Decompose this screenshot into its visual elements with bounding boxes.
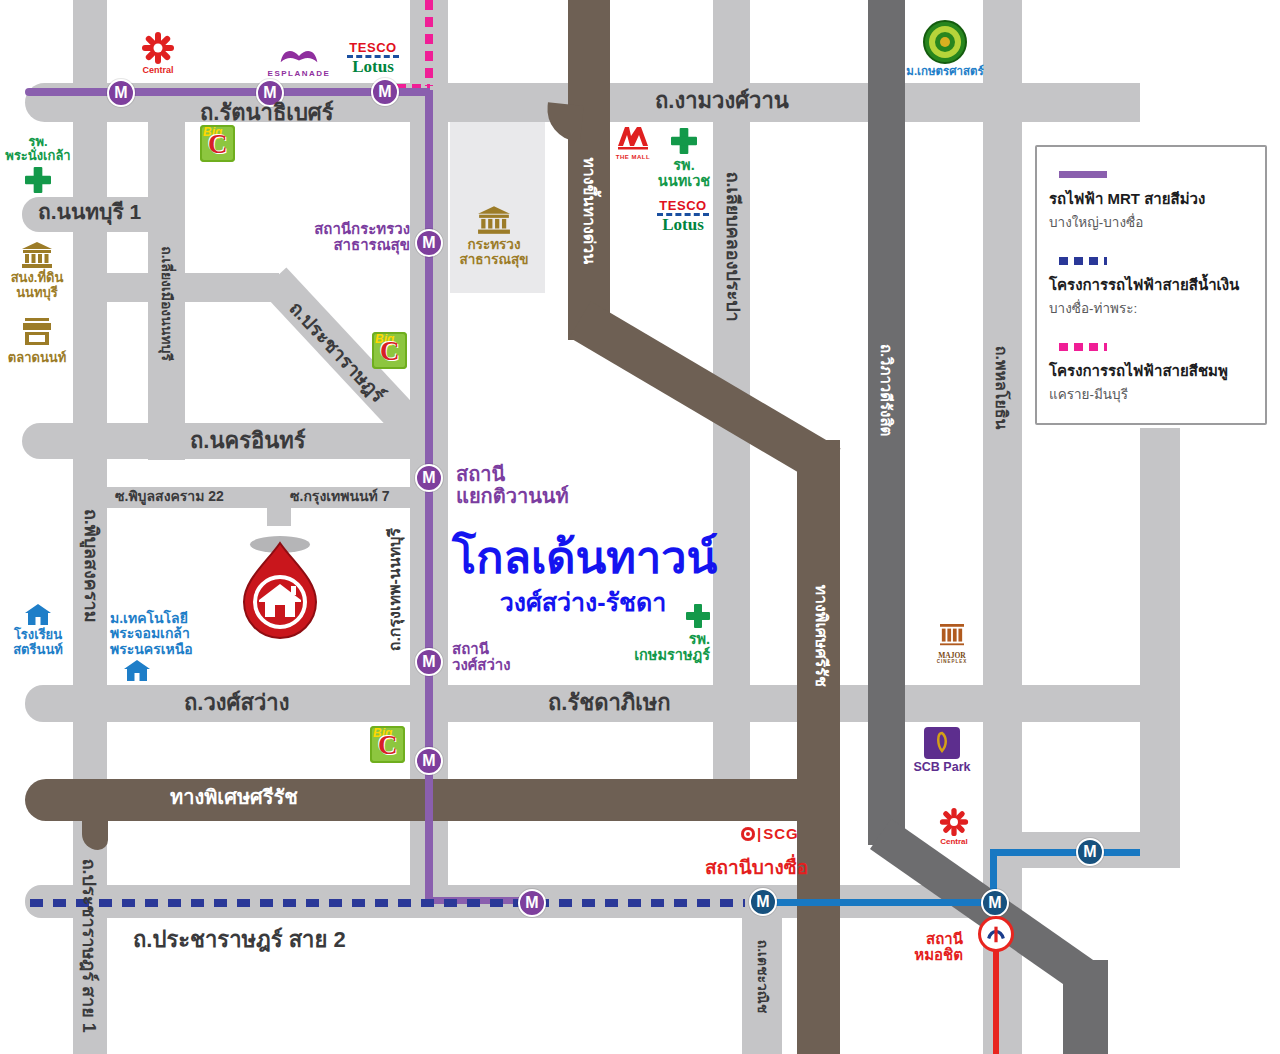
road-label-soi-phibun22: ซ.พิบูลสงคราม 22 bbox=[115, 489, 224, 504]
hospital-label-line: รพ. bbox=[650, 158, 718, 174]
station-label-line: สถานี bbox=[452, 641, 511, 657]
station-label-krasuang: สถานีกระทรวง สาธารณสุข bbox=[280, 221, 410, 253]
legend-swatch-pink-line bbox=[1059, 343, 1107, 351]
landmark-moph: กระทรวง สาธารณสุข bbox=[448, 206, 540, 268]
mrt-station-icon-tiwanon: M bbox=[415, 464, 443, 492]
map-canvas: M M M M M M M M M M M ถ.รัตนาธิเบศร์ ถ.ง… bbox=[0, 0, 1280, 1054]
road-label-expressway-ramp: ทางขึ้นทางด่วน bbox=[580, 126, 597, 296]
hospital-label-line: นนทเวช bbox=[650, 174, 718, 190]
legend-sub-pink-line: แคราย-มีนบุรี bbox=[1049, 383, 1128, 405]
expressway-ramp-hook bbox=[544, 102, 584, 142]
landmark-bigc-wongsawang: Big C bbox=[370, 726, 405, 763]
mrt-blue-station-icon: M bbox=[1076, 838, 1104, 866]
tesco-label: TESCO bbox=[347, 41, 399, 54]
road-label-liang-mueang: ถ.เลี่ยงเมืองนนทบุรี bbox=[158, 219, 173, 389]
landmark-the-mall: THE MALL bbox=[613, 126, 653, 160]
road-label-ngamwongwan: ถ.งามวงศ์วาน bbox=[655, 89, 789, 113]
central-label: Central bbox=[936, 838, 972, 847]
hospital-cross-icon bbox=[671, 128, 697, 154]
lotus-label: Lotus bbox=[657, 217, 709, 232]
station-label-line: สถานีกระทรวง bbox=[280, 221, 410, 237]
road-label-viphavadi: ถ.วิภาวดีรังสิต bbox=[877, 318, 893, 463]
landmark-scb-park: SCB Park bbox=[908, 727, 976, 775]
the-mall-icon bbox=[616, 126, 650, 150]
landmark-nonthavej-hospital: รพ. นนทเวช bbox=[650, 128, 718, 190]
road-label-phibunsongkhram: ถ.พิบูลสงคราม bbox=[80, 481, 99, 651]
school-label-line: โรงเรียน bbox=[4, 628, 72, 642]
landmark-phranangklao-hospital: รพ. พระนั่งเกล้า bbox=[4, 135, 72, 196]
bigc-c-label: C bbox=[380, 336, 400, 367]
blue-line-east bbox=[990, 849, 1140, 856]
landmark-satrinon-school: โรงเรียน สตรีนนท์ bbox=[4, 604, 72, 657]
central-label: Central bbox=[138, 66, 178, 76]
legend-sub-purple-line: บางใหญ่-บางซื่อ bbox=[1049, 211, 1143, 233]
road-label-pracharat-sai2: ถ.ประชาราษฎร์ สาย 2 bbox=[133, 928, 346, 952]
mrt-station-icon: M bbox=[518, 889, 546, 917]
scg-label: SCG bbox=[763, 826, 799, 843]
red-bts-line bbox=[993, 948, 999, 1054]
moph-label-line: สาธารณสุข bbox=[448, 253, 540, 268]
road-label-techawanit: ถ.เตชะวณิช bbox=[754, 922, 769, 1032]
land-office-label-line: สนง.ที่ดิน bbox=[2, 271, 72, 285]
esplanade-logo-icon bbox=[276, 44, 322, 66]
landmark-scg: | SCG bbox=[741, 826, 799, 843]
central-flower-icon bbox=[141, 31, 175, 65]
landmark-bigc-rattanathibet: Big C bbox=[200, 125, 235, 162]
m-letter: M bbox=[422, 752, 435, 770]
road-label-nonthaburi1: ถ.นนทบุรี 1 bbox=[38, 201, 141, 224]
road-label-ratchadaphisek: ถ.รัชดาภิเษก bbox=[548, 691, 671, 715]
tesco-label: TESCO bbox=[657, 199, 709, 212]
station-label-line: วงศ์สว่าง bbox=[452, 657, 511, 673]
road-label-phahonyothin: ถ.พหลโยธิน bbox=[993, 315, 1010, 460]
purple-line-vertical bbox=[425, 90, 433, 902]
legend-label-purple-line: รถไฟฟ้า MRT สายสีม่วง bbox=[1049, 187, 1205, 211]
blue-dashed-line bbox=[30, 899, 745, 907]
m-letter: M bbox=[525, 894, 538, 912]
road-label-liap-khlong-prapa: ถ.เลียบคลองประปา bbox=[722, 122, 741, 372]
school-label-line: สตรีนนท์ bbox=[4, 643, 72, 657]
station-label-mochit: สถานี หมอชิต bbox=[879, 931, 963, 963]
legend-swatch-purple-line bbox=[1059, 171, 1107, 178]
station-label-line: หมอชิต bbox=[879, 947, 963, 963]
station-label-bangsue: สถานีบางซื่อ bbox=[705, 858, 808, 879]
central-flower-icon bbox=[939, 807, 969, 837]
landmark-talad-non: ตลาดนนท์ bbox=[2, 318, 72, 366]
pink-line-vertical bbox=[425, 0, 433, 86]
landmark-tesco-lotus-rattanathibet: TESCO Lotus bbox=[347, 41, 399, 74]
kasetsart-logo-icon bbox=[923, 20, 967, 64]
landmark-kasetsart: ม.เกษตรศาสตร์ bbox=[905, 20, 985, 78]
road-soi-stub bbox=[267, 506, 291, 526]
station-label-line: สถานี bbox=[456, 464, 569, 486]
hospital-cross-icon bbox=[25, 167, 51, 193]
mrt-blue-station-icon-mochit: M bbox=[981, 889, 1009, 917]
bigc-c-label: C bbox=[208, 129, 228, 160]
mrt-station-icon: M bbox=[371, 78, 399, 106]
landmark-kasemrat-hospital: รพ. เกษมราษฎร์ bbox=[614, 604, 710, 664]
station-label-wongsawang: สถานี วงศ์สว่าง bbox=[452, 641, 511, 673]
station-label-line: สาธารณสุข bbox=[280, 237, 410, 253]
mrt-station-icon: M bbox=[415, 747, 443, 775]
expressway-vertical bbox=[797, 440, 840, 1054]
legend-swatch-blue-line bbox=[1059, 257, 1107, 265]
moph-label-line: กระทรวง bbox=[448, 238, 540, 253]
landmark-tesco-lotus-ngamwongwan: TESCO Lotus bbox=[657, 199, 709, 232]
talad-non-label: ตลาดนนท์ bbox=[2, 351, 72, 365]
station-label-line: แยกติวานนท์ bbox=[456, 486, 569, 508]
university-icon bbox=[124, 660, 150, 681]
landmark-central-mochit: Central bbox=[936, 807, 972, 846]
landmark-land-office: สนง.ที่ดิน นนทบุรี bbox=[2, 242, 72, 300]
government-building-icon bbox=[477, 206, 511, 234]
land-office-label-line: นนทบุรี bbox=[2, 286, 72, 300]
blue-line-bangsue bbox=[763, 899, 995, 906]
school-icon bbox=[25, 604, 51, 625]
scg-divider: | bbox=[757, 826, 761, 843]
landmark-major-cineplex: MAJOR CINEPLEX bbox=[930, 624, 974, 665]
mrt-blue-station-icon-bangsue: M bbox=[749, 888, 777, 916]
hospital-label-line: เกษมราษฎร์ bbox=[614, 648, 710, 664]
bts-logo-icon bbox=[985, 923, 1007, 945]
bts-station-icon bbox=[978, 916, 1014, 952]
purple-line-top bbox=[25, 88, 430, 96]
m-letter: M bbox=[1083, 843, 1096, 861]
m-letter: M bbox=[378, 83, 391, 101]
legend-label-blue-line: โครงการรถไฟฟ้าสายสีน้ำเงิน bbox=[1049, 273, 1239, 297]
m-letter: M bbox=[114, 84, 127, 102]
m-letter: M bbox=[422, 469, 435, 487]
university-label-line: พระนครเหนือ bbox=[110, 642, 193, 657]
project-pin-icon bbox=[242, 541, 318, 639]
road-label-wongsawang: ถ.วงศ์สว่าง bbox=[184, 691, 289, 715]
road-viphavadi-south bbox=[1063, 960, 1108, 1054]
cineplex-label: CINEPLEX bbox=[930, 660, 974, 665]
road-label-srirat-expressway-v: ทางพิเศษศรีรัช bbox=[812, 551, 829, 721]
hospital-label-line: พระนั่งเกล้า bbox=[4, 149, 72, 163]
m-letter: M bbox=[756, 893, 769, 911]
landmark-bigc-pracharat: Big C bbox=[372, 332, 407, 369]
landmark-central-rattanathibet: Central bbox=[138, 31, 178, 75]
scb-park-label: SCB Park bbox=[908, 761, 976, 775]
major-cineplex-icon bbox=[937, 624, 967, 648]
station-label-line: สถานี bbox=[879, 931, 963, 947]
kasetsart-label: ม.เกษตรศาสตร์ bbox=[905, 65, 985, 78]
market-icon bbox=[22, 318, 52, 348]
bigc-c-label: C bbox=[378, 730, 398, 761]
mrt-station-icon-wongsawang: M bbox=[415, 648, 443, 676]
landmark-esplanade: ESPLANADE bbox=[260, 44, 338, 78]
legend-label-pink-line: โครงการรถไฟฟ้าสายสีชมพู bbox=[1049, 359, 1228, 383]
station-label-tiwanon: สถานี แยกติวานนท์ bbox=[456, 464, 569, 507]
scb-leaf-icon bbox=[930, 731, 954, 755]
road-label-pracharat-sai1: ถ.ประชาราษฎร์ สาย 1 bbox=[79, 838, 98, 1053]
hospital-cross-icon bbox=[686, 604, 710, 628]
m-letter: M bbox=[988, 894, 1001, 912]
university-label-line: พระจอมเกล้า bbox=[110, 626, 193, 641]
m-letter: M bbox=[422, 653, 435, 671]
road-label-krungthep-nonthaburi: ถ.กรุงเทพ-นนทบุรี bbox=[386, 497, 403, 682]
legend-sub-blue-line: บางซื่อ-ท่าพระ: bbox=[1049, 297, 1137, 319]
mrt-station-icon: M bbox=[107, 79, 135, 107]
scb-logo-icon bbox=[924, 727, 960, 759]
the-mall-label: THE MALL bbox=[613, 154, 653, 161]
landmark-kmutnb: ม.เทคโนโลยี พระจอมเกล้า พระนครเหนือ bbox=[110, 611, 193, 685]
road-label-soi-krungthepnon7: ซ.กรุงเทพนนท์ 7 bbox=[290, 489, 390, 504]
road-ladder-stub bbox=[104, 273, 279, 302]
road-label-rattanathibet: ถ.รัตนาธิเบศร์ bbox=[200, 101, 334, 125]
m-letter: M bbox=[422, 234, 435, 252]
university-label-line: ม.เทคโนโลยี bbox=[110, 611, 193, 626]
esplanade-label: ESPLANADE bbox=[260, 70, 338, 79]
government-building-icon bbox=[21, 242, 53, 268]
mrt-station-icon-krasuang: M bbox=[415, 229, 443, 257]
scg-logo-icon bbox=[741, 827, 755, 841]
hospital-label-line: รพ. bbox=[614, 632, 710, 648]
road-label-nakhon-in: ถ.นครอินทร์ bbox=[190, 429, 306, 453]
road-label-srirat-expressway: ทางพิเศษศรีรัช bbox=[170, 787, 298, 809]
lotus-label: Lotus bbox=[347, 59, 399, 74]
legend-box: รถไฟฟ้า MRT สายสีม่วง บางใหญ่-บางซื่อ โค… bbox=[1035, 145, 1267, 425]
road-right-edge-vertical bbox=[1140, 428, 1180, 868]
